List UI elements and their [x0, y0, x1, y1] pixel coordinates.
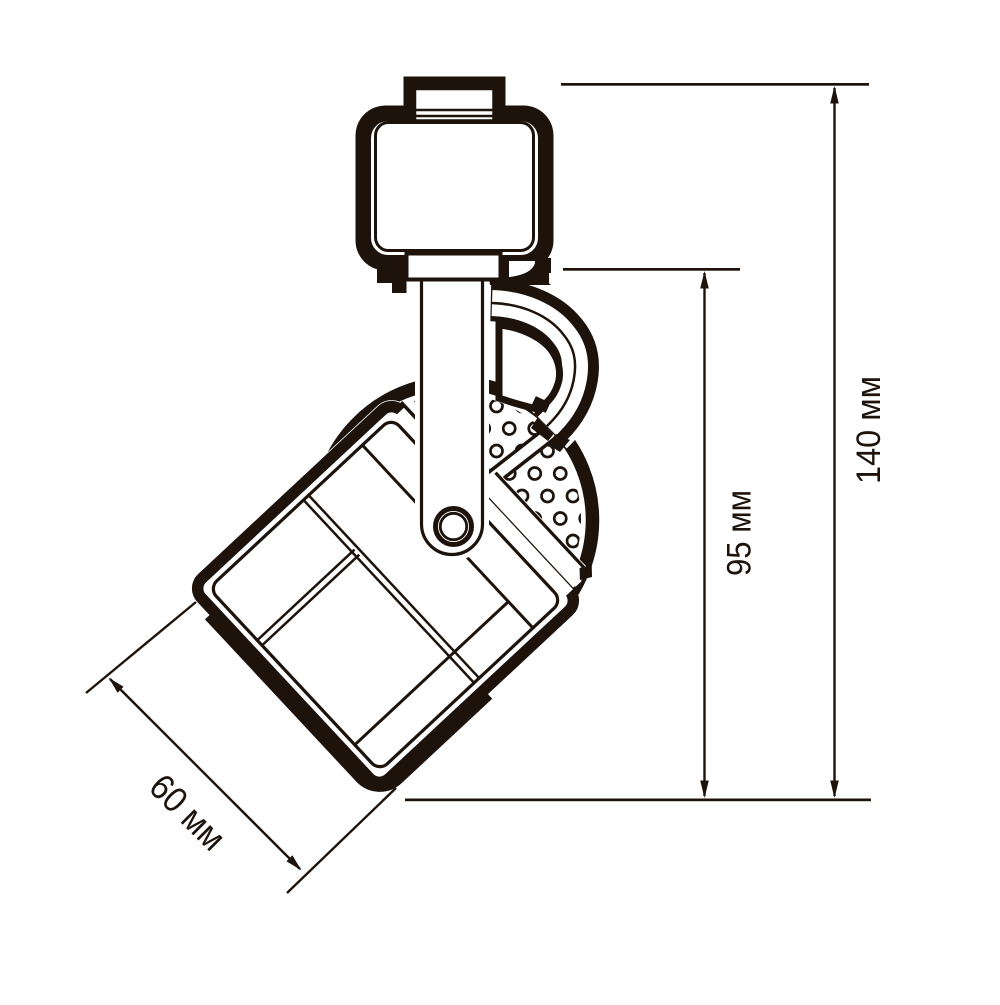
svg-text:140 мм: 140 мм — [850, 376, 888, 484]
svg-text:95 мм: 95 мм — [721, 490, 759, 576]
